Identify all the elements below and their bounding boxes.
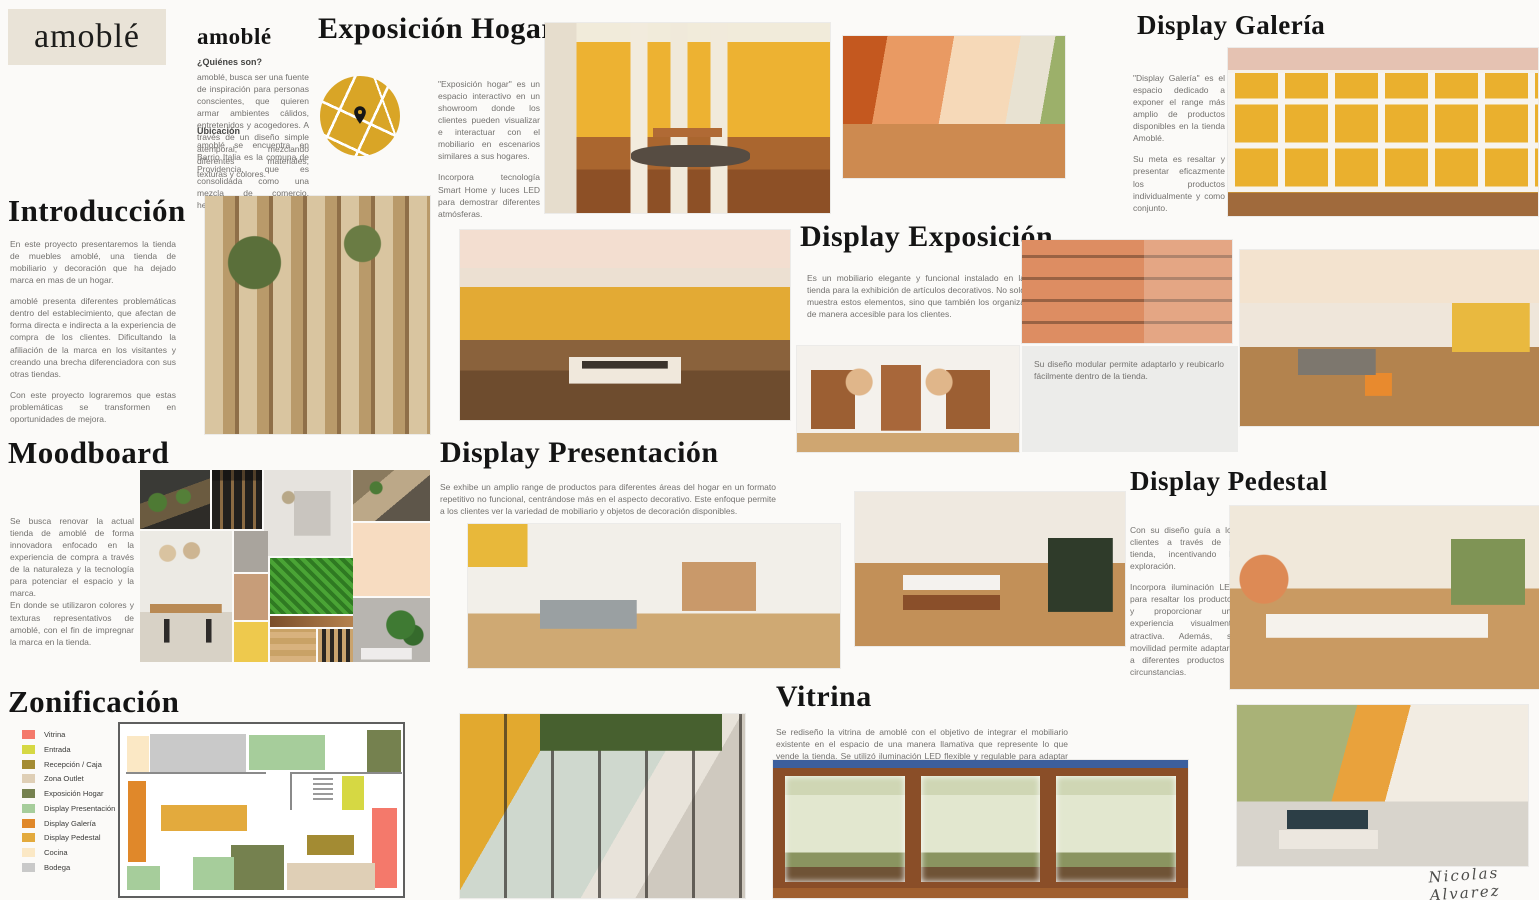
introduccion-p1: En este proyecto presentaremos la tienda… [10,238,176,286]
render-display-exposicion-closeup [1022,240,1232,343]
render-display-exposicion-modulos [797,346,1019,452]
render-pergola-interior [460,714,745,898]
photo-interior-madera-escaleras [205,196,430,434]
legend-label: Display Galería [44,819,96,828]
plan-zone-cocina [127,736,149,772]
render-sala-exposicion [1240,250,1539,426]
plan-zone-bodega [150,734,246,772]
photo-detail [653,128,721,138]
legend-chip [22,774,35,783]
location-map [320,76,400,156]
plan-zone-display-galeria [128,781,146,862]
plan-wall [126,772,266,774]
signature: Nicolas Alvarez [1391,861,1538,900]
legend-label: Exposición Hogar [44,789,104,798]
moodboard-tile [353,598,430,662]
exposicion-hogar-text: "Exposición hogar" es un espacio interac… [438,78,540,229]
render-display-pedestal-sala [855,492,1125,646]
plan-zone-display-pedestal [161,805,247,831]
brand-logo-text: amoblé [34,18,140,56]
moodboard-tile [140,470,210,529]
legend-label: Bodega [44,863,70,872]
vitrina-base [773,888,1188,898]
exposicion-hogar-p2: Incorpora tecnología Smart Home y luces … [438,171,540,219]
vitrina-ventana [921,776,1041,882]
plan-stairs [313,776,333,800]
moodboard-color-swatch [234,622,268,662]
who-title: ¿Quiénes son? [197,57,262,67]
vitrina-toldo [773,760,1188,768]
zonificacion-floor-plan [118,722,405,898]
legend-chip [22,730,35,739]
legend-label: Vitrina [44,730,65,739]
legend-label: Display Presentación [44,804,115,813]
legend-chip [22,863,35,872]
legend-label: Entrada [44,745,71,754]
moodboard-color-swatch [234,531,268,572]
display-galeria-p1: "Display Galería" es el espacio dedicado… [1133,72,1225,144]
vitrina-ventana [1056,776,1176,882]
legend-chip [22,804,35,813]
render-display-galeria-estanteria [1228,48,1538,216]
display-exposicion-text: Es un mobiliario elegante y funcional in… [807,272,1025,320]
photo-detail [631,145,751,168]
display-presentacion-title: Display Presentación [440,436,719,470]
legend-chip [22,745,35,754]
map-pin-icon [353,106,367,124]
render-showroom-estanteria [460,230,790,420]
legend-chip [22,819,35,828]
moodboard-tile [264,470,351,556]
plan-zone-display-presentacion [249,735,325,770]
moodboard-tile [353,470,430,521]
moodboard-color-swatch [353,523,430,596]
legend-chip [22,789,35,798]
brand-logo-box: amoblé [8,9,166,65]
vitrina-title: Vitrina [776,680,872,714]
moodboard-texture-bronze [270,616,353,627]
render-display-pedestal-tienda [1230,506,1539,689]
moodboard-title: Moodboard [8,435,169,471]
render-dormitorio [1237,705,1528,866]
moodboard-tile [140,531,232,662]
plan-zone-display-presentacion [127,866,160,890]
vitrina-ventanas [785,776,1176,882]
plan-wall [290,772,402,774]
plan-zone-zona-outlet [287,863,375,890]
vitrina-ventana [785,776,905,882]
display-galeria-text: "Display Galería" es el espacio dedicado… [1133,72,1225,223]
plan-wall [290,772,292,810]
render-vitrina-fachada [773,760,1188,898]
zonificacion-title: Zonificación [8,684,179,720]
moodboard-texture-slats [318,629,353,662]
display-exposicion-caption: Su diseño modular permite adaptarlo y re… [1022,346,1238,382]
moodboard-text: Se busca renovar la actual tienda de amo… [10,515,134,648]
exposicion-hogar-p1: "Exposición hogar" es un espacio interac… [438,78,540,162]
plan-zone-entrada [342,776,364,810]
display-exposicion-caption-box: Su diseño modular permite adaptarlo y re… [1022,346,1238,452]
introduccion-p2: amoblé presenta diferentes problemáticas… [10,295,176,379]
moodboard-texture-foliage [270,558,353,614]
plan-zone-display-presentacion [193,857,234,890]
legend-label: Zona Outlet [44,774,84,783]
location-title: Ubicación [197,126,240,136]
moodboard-p2: En donde se utilizaron colores y textura… [10,599,134,647]
legend-chip [22,760,35,769]
about-heading: amoblé [197,24,272,50]
display-galeria-title: Display Galería [1137,10,1325,41]
display-pedestal-p1: Con su diseño guía a los clientes a trav… [1130,524,1236,572]
render-exposicion-hogar [545,23,830,213]
plan-zone-exposicion-hogar [231,845,284,890]
moodboard-texture-wood [270,629,316,662]
legend-chip [22,833,35,842]
render-tienda-interior [843,36,1065,178]
plan-zone-exposicion-hogar [367,730,401,772]
display-pedestal-p2: Incorpora iluminación LED para resaltar … [1130,581,1236,678]
display-presentacion-text: Se exhibe un amplio range de productos p… [440,481,776,517]
exposicion-hogar-title: Exposición Hogar [318,12,555,46]
moodboard-color-swatch [234,574,268,620]
render-display-presentacion [468,524,840,668]
legend-chip [22,848,35,857]
plan-zone-vitrina [372,808,397,888]
display-pedestal-title: Display Pedestal [1130,466,1328,497]
moodboard-p1: Se busca renovar la actual tienda de amo… [10,515,134,599]
display-pedestal-text: Con su diseño guía a los clientes a trav… [1130,524,1236,687]
moodboard-collage [140,470,430,662]
plan-zone-recepcion-caja [307,835,354,855]
introduccion-title: Introducción [8,193,186,229]
display-exposicion-title: Display Exposición [800,220,1053,254]
legend-label: Cocina [44,848,68,857]
legend-label: Display Pedestal [44,833,101,842]
legend-label: Recepción / Caja [44,760,102,769]
introduccion-p3: Con este proyecto lograremos que estas p… [10,389,176,425]
display-galeria-p2: Su meta es resaltar y presentar eficazme… [1133,153,1225,213]
moodboard-tile [212,470,262,529]
presentation-board: amoblé amoblé ¿Quiénes son? amoblé, busc… [0,0,1539,900]
introduccion-text: En este proyecto presentaremos la tienda… [10,238,176,434]
